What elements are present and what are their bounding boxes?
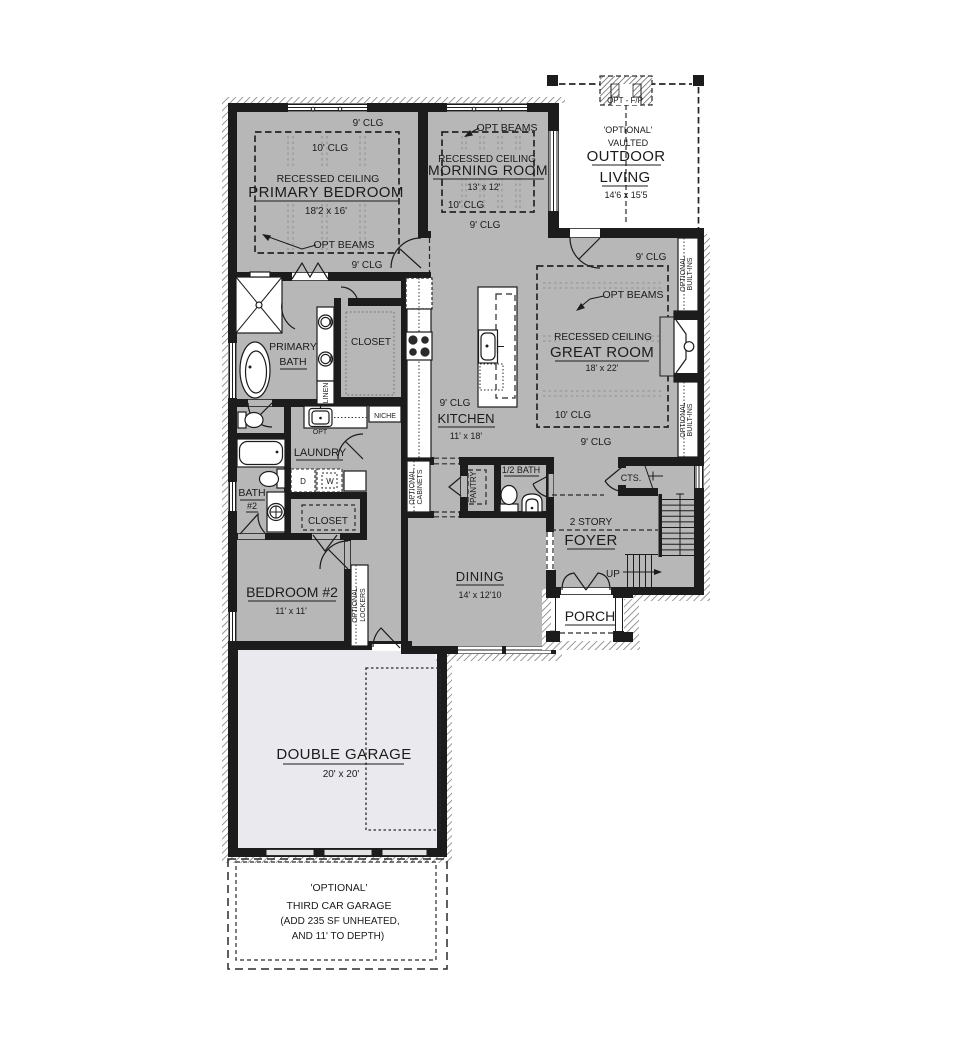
svg-text:LOCKERS: LOCKERS [360, 588, 367, 622]
svg-text:OPTIONAL: OPTIONAL [409, 469, 416, 505]
svg-text:18'2 x 16': 18'2 x 16' [305, 206, 347, 217]
svg-text:VAULTED: VAULTED [608, 138, 649, 148]
svg-text:D: D [300, 477, 306, 486]
svg-text:11' x 11': 11' x 11' [275, 606, 307, 616]
svg-text:CLOSET: CLOSET [351, 337, 391, 348]
svg-text:OPT BEAMS: OPT BEAMS [602, 289, 663, 301]
svg-text:MORNING ROOM: MORNING ROOM [428, 162, 548, 178]
svg-text:#2: #2 [247, 501, 257, 511]
svg-text:OPTIONAL: OPTIONAL [680, 402, 687, 438]
svg-text:UP: UP [606, 569, 620, 580]
svg-text:CTS.: CTS. [621, 473, 642, 483]
svg-text:PRIMARY BEDROOM: PRIMARY BEDROOM [248, 184, 403, 201]
svg-text:10' CLG: 10' CLG [555, 410, 592, 421]
svg-text:KITCHEN: KITCHEN [437, 411, 494, 426]
svg-text:11' x 18': 11' x 18' [450, 431, 483, 441]
svg-text:DOUBLE GARAGE: DOUBLE GARAGE [276, 746, 411, 763]
svg-text:THIRD CAR GARAGE: THIRD CAR GARAGE [286, 900, 391, 912]
svg-text:'OPTIONAL': 'OPTIONAL' [310, 882, 367, 894]
svg-text:AND 11' TO DEPTH): AND 11' TO DEPTH) [292, 931, 385, 942]
svg-text:BATH: BATH [279, 356, 306, 368]
svg-text:18' x 22': 18' x 22' [586, 363, 619, 373]
svg-text:'OPTIONAL': 'OPTIONAL' [604, 125, 653, 135]
svg-text:DINING: DINING [456, 569, 505, 584]
svg-text:LAUNDRY: LAUNDRY [294, 447, 347, 459]
svg-text:BATH: BATH [238, 487, 265, 499]
svg-text:(ADD 235 SF UNHEATED,: (ADD 235 SF UNHEATED, [280, 916, 399, 927]
svg-text:NICHE: NICHE [374, 413, 396, 420]
svg-text:PANTRY: PANTRY [469, 470, 478, 502]
svg-text:GREAT ROOM: GREAT ROOM [550, 344, 654, 361]
svg-text:9' CLG: 9' CLG [440, 398, 471, 409]
svg-text:20' x 20': 20' x 20' [323, 769, 360, 780]
svg-text:BUILT-INS: BUILT-INS [687, 257, 694, 290]
svg-text:OPT BEAMS: OPT BEAMS [313, 239, 374, 251]
svg-text:OPT - F/P: OPT - F/P [607, 96, 643, 105]
svg-text:9' CLG: 9' CLG [581, 437, 612, 448]
svg-text:9' CLG: 9' CLG [353, 118, 384, 129]
svg-text:10' CLG: 10' CLG [312, 143, 349, 154]
svg-text:OPTIONAL: OPTIONAL [680, 256, 687, 292]
svg-text:9' CLG: 9' CLG [352, 260, 383, 271]
svg-text:PRIMARY: PRIMARY [269, 341, 317, 353]
svg-text:LINEN: LINEN [323, 383, 330, 404]
svg-text:14' x 12'10: 14' x 12'10 [459, 590, 502, 600]
svg-text:BEDROOM #2: BEDROOM #2 [246, 584, 338, 600]
svg-text:OUTDOOR: OUTDOOR [587, 148, 666, 165]
svg-text:W: W [326, 477, 334, 486]
svg-text:LIVING: LIVING [600, 169, 651, 186]
svg-text:2 STORY: 2 STORY [570, 517, 613, 528]
svg-text:1/2 BATH: 1/2 BATH [502, 465, 540, 475]
svg-text:13' x 12': 13' x 12' [468, 182, 501, 192]
svg-text:PORCH: PORCH [565, 608, 616, 624]
svg-text:9' CLG: 9' CLG [470, 220, 501, 231]
svg-text:OPT BEAMS: OPT BEAMS [476, 122, 537, 134]
svg-text:10' CLG: 10' CLG [448, 200, 485, 211]
svg-text:FOYER: FOYER [564, 532, 617, 549]
svg-text:9' CLG: 9' CLG [636, 252, 667, 263]
svg-text:BUILT-INS: BUILT-INS [687, 403, 694, 436]
svg-text:RECESSED CEILING: RECESSED CEILING [554, 332, 652, 343]
svg-text:14'6 x 15'5: 14'6 x 15'5 [605, 190, 648, 200]
svg-text:OPTIONAL: OPTIONAL [352, 587, 359, 623]
svg-text:CLOSET: CLOSET [308, 516, 348, 527]
svg-text:OPT: OPT [313, 429, 328, 436]
svg-text:CABINETS: CABINETS [417, 469, 424, 504]
